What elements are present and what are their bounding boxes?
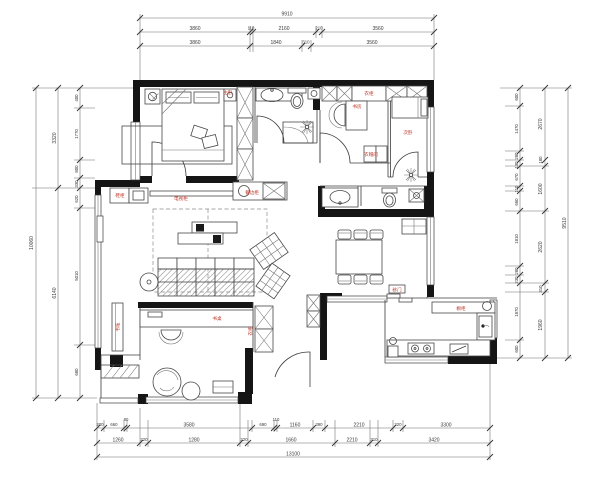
dining-chairs-top [338,230,383,239]
label-desk: 书桌 [212,315,222,322]
lounge-chair-2 [256,263,290,299]
dim-bot-r1-3: 3580 [183,423,194,429]
shoe-cabinet-entry [255,306,273,352]
label-shoe-cabinet: 鞋柜 [115,192,125,199]
dim-bot-r1-8: 2210 [353,423,364,429]
washing-machine [409,189,424,202]
wall-entry-left [245,348,253,394]
dim-right-mid-1: 180 [538,156,543,164]
lounge-armchair [153,368,200,400]
master-bathroom [256,88,320,143]
dim-left-mid-1: 6140 [52,287,58,298]
wall-bay-bottom [95,348,101,370]
dim-left-in-1: 1770 [74,129,79,139]
sideboard [233,182,287,200]
dim-right-mid-0: 2670 [538,118,544,129]
dim-bot-total: 13100 [286,452,300,458]
floor-drain-symbol-2 [404,168,418,182]
nightstand-left [145,89,160,104]
wall-bay-top [95,187,101,195]
dim-right-in-6: 660 [514,198,519,206]
dim-right-in-7: 1810 [514,234,519,244]
dim-top-r3-0: 3860 [189,40,200,46]
dim-bot-r1-4: 690 [259,422,267,427]
label-master-bedroom: 主卧 [223,89,233,96]
dining-table [336,240,382,274]
label-wardrobe-top: 衣柜 [364,90,374,97]
dim-bot-r2-1: 220 [140,437,148,442]
dim-bot-r1-7: 390 [315,422,323,427]
sofa [158,258,254,296]
dimensions-top: 9910 3860 110 2160 210 3560 3860 1840 31… [137,12,437,81]
wall-right-low [427,285,434,297]
dim-right-in-11: 600 [514,345,519,353]
dim-bot-r2-0: 1260 [112,438,123,444]
wall-kitchen-right [490,338,497,364]
dim-bot-r2-6: 310 [370,437,378,442]
dim-top-r3-1: 1840 [270,40,281,46]
dim-top-r2-1: 110 [248,26,255,31]
dim-right-in-0: 600 [514,93,519,101]
label-sideboard: 餐边柜 [245,189,259,196]
floor-plan-page: 9910 3860 110 2160 210 3560 3860 1840 31… [0,0,600,480]
kitchen-counter-bottom [387,340,490,356]
corner-cabinet [308,88,320,99]
dim-right-in-9: 230 [514,276,519,284]
dim-left-in-4: 620 [74,195,79,203]
cabinet-entry-right [307,295,320,327]
dim-right-in-3: 130 [514,161,519,169]
dim-right-mid-5: 1960 [538,319,544,330]
guest-bathroom [322,168,426,234]
label-tv-console: 电视柜 [174,195,188,202]
dim-bot-r2-4: 1660 [285,438,296,444]
label-bookshelf: 书柜 [115,322,122,332]
dim-left-in-2: 800 [74,165,79,173]
floor-drain-symbol [300,120,314,134]
kitchen-sink [479,316,492,337]
dim-right-in-4: 670 [514,173,519,181]
tv-console [150,191,233,196]
dim-right-in-8: 280 [514,267,519,275]
label-kitchen-door: 移门 [392,287,402,294]
dim-left-in-6: 680 [74,368,79,376]
door-entry [275,352,310,387]
dim-bot-r1-6: 1160 [290,423,301,429]
desk-chair [161,330,181,340]
dim-left-total: 10060 [29,236,35,250]
floor-plan-canvas: 9910 3860 110 2160 210 3560 3860 1840 31… [0,0,600,480]
dim-right-in-1: 1470 [514,124,519,134]
coffee-table-upper [192,222,237,233]
wall-kitchen-bottom [448,356,497,364]
label-kitchen-cabinet: 橱柜 [456,305,466,312]
dim-top-r2-2: 2160 [278,26,289,32]
pillow-single [421,99,427,116]
study-chair [334,104,345,126]
door-master-bath [257,116,284,143]
wall-guestbath-bottom [318,209,433,217]
label-wardrobe-side: 衣柜 [247,326,254,336]
side-table-round [140,273,158,291]
dim-bot-r2-3: 220 [240,437,248,442]
kitchen [387,285,495,357]
dim-bot-r2-2: 1280 [188,438,199,444]
label-walkin-closet: 衣帽间 [364,151,378,158]
dim-right-in-2: 280 [514,152,519,160]
dim-bot-r2-5: 2210 [346,438,357,444]
dim-bot-r1-9: 320 [394,422,402,427]
dim-bot-r1-0: 200 [96,422,104,427]
tv-wall-cabinets [110,188,233,203]
dim-bot-r1-5: 110 [273,417,280,422]
dim-right-in-10: 1870 [514,307,519,317]
dim-right-total: 9510 [562,217,568,228]
stool [213,381,233,393]
dim-top-total: 9910 [281,12,292,18]
guest-toilet-fixture [382,188,397,207]
dim-left-in-0: 400 [74,94,79,102]
wall-entry-right [320,293,327,360]
study-bottom-room [112,303,253,400]
window-bay-panel [97,216,103,242]
wardrobe-master-column [237,87,253,180]
wall-left-upper [133,87,140,122]
closets [237,86,427,352]
dim-top-r3-2: 310 [302,40,310,45]
label-study: 书房 [352,103,362,110]
dim-right-mid-4: 310 [538,285,543,293]
dim-top-r2-0: 3860 [189,26,200,32]
dim-top-r2-4: 3560 [372,26,383,32]
dim-bot-r1-2: 80 [124,417,129,422]
label-bedroom2: 次卧 [403,129,413,136]
desk-tray [148,312,162,317]
dining-area [336,230,383,284]
stove [408,343,434,354]
dimensions-right: 600 1470 280 130 670 110 660 1810 280 23… [497,85,572,361]
dim-right-in-5: 110 [514,185,519,192]
dim-top-r2-3: 210 [315,26,323,31]
dim-top-r3-3: 3560 [366,40,377,46]
lounge-chair-1 [250,233,288,270]
door-kitchen-sliding [387,294,412,302]
hall-cabinet-2 [129,188,148,203]
dim-left-in-3: 330 [74,180,79,188]
windows [95,107,497,403]
cutting-board [450,344,468,354]
coffee-table-lower [178,233,223,244]
bed-double [162,89,224,161]
window-balcony-bottom [100,398,138,403]
dim-right-mid-2: 1600 [538,183,544,194]
ottoman [182,382,200,400]
wall-study-top [138,302,253,308]
dim-bot-r1-1: 660 [110,422,118,427]
wall-right-mid [427,172,434,217]
dimensions-left: 10060 3320 6140 400 1770 800 330 620 501… [29,85,133,401]
wall-master-bottom-b [186,176,239,183]
living-room [110,182,290,299]
dim-bot-r2-7: 3420 [428,438,439,444]
door-bedroom2 [393,152,418,177]
dining-chairs-bottom [338,275,383,284]
dim-left-in-5: 5010 [74,271,79,281]
bedroom2-room [392,97,428,118]
dim-bot-r1-10: 3300 [440,423,451,429]
dim-right-mid-3: 2620 [538,241,544,252]
dim-left-mid-0: 3320 [52,132,58,143]
door-study [320,133,350,163]
